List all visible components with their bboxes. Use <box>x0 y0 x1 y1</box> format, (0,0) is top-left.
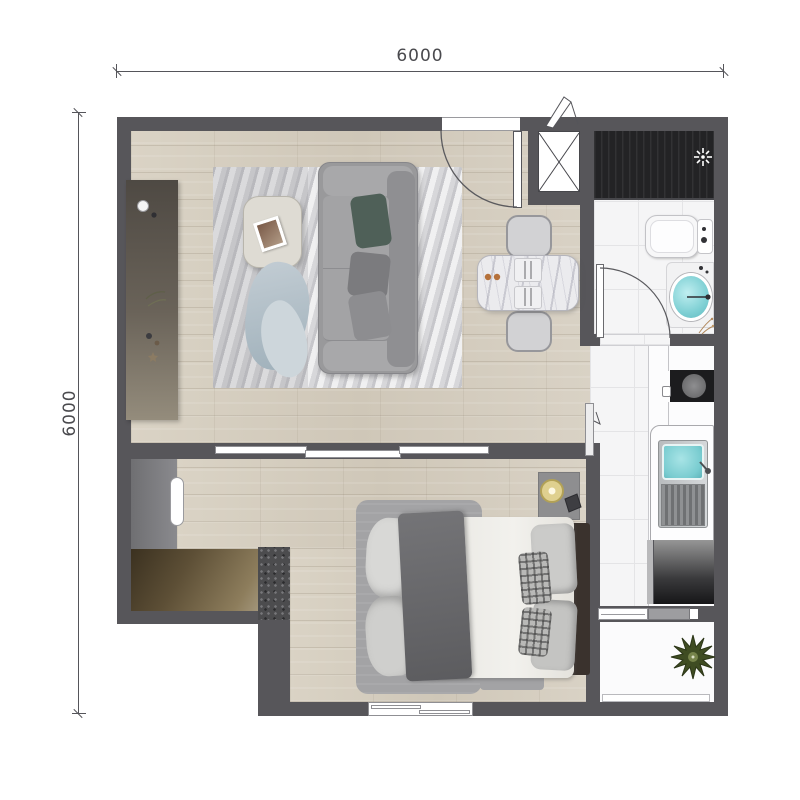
dimension-line-top <box>117 71 724 72</box>
table-lamp <box>541 480 563 502</box>
slide-arrow <box>594 412 600 424</box>
plan-annotations <box>0 0 800 800</box>
fruit <box>485 274 491 280</box>
exhaust-fan-icon <box>694 148 712 166</box>
cutlery <box>525 261 531 306</box>
book <box>565 494 581 512</box>
plant <box>671 635 715 679</box>
duct-shaft-cross <box>539 133 579 191</box>
bathroom-door-arc <box>600 268 670 338</box>
exterior-door-leaf <box>546 97 578 128</box>
soap-dish <box>699 266 703 270</box>
decor-sprig <box>699 318 714 334</box>
soap-dish <box>706 271 709 274</box>
entry-door-arc <box>441 131 517 207</box>
fruit <box>494 274 500 280</box>
dimension-label-left: 6000 <box>60 373 80 453</box>
floor-plan: 6000 6000 <box>0 0 800 800</box>
console-decor <box>138 201 167 363</box>
toilet-button <box>701 237 707 243</box>
bathroom-faucet <box>687 294 711 299</box>
toilet-button <box>702 227 706 231</box>
dimension-label-top: 6000 <box>380 46 460 66</box>
kitchen-faucet <box>700 462 711 474</box>
